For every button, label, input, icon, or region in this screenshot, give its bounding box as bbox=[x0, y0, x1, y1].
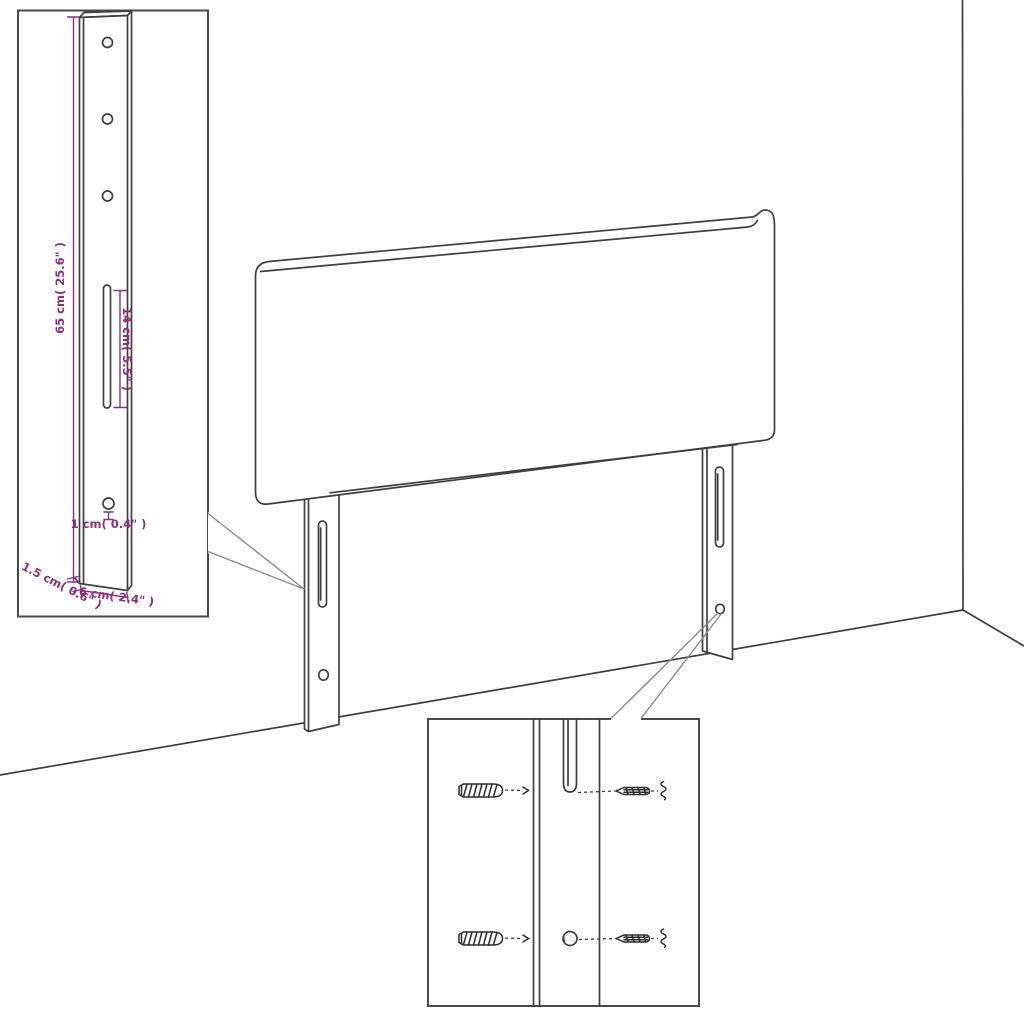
callout-notch-left bbox=[208, 512, 305, 589]
screw-detail-inset bbox=[428, 719, 699, 1006]
dim-height-label: 65 cm( 25.6" ) bbox=[53, 242, 67, 334]
wall-corner-line bbox=[963, 0, 964, 610]
dim-slot-label: 14 cm( 5.5" ) bbox=[120, 307, 134, 391]
strip-hole-accent bbox=[564, 937, 565, 942]
plug-dash-2 bbox=[505, 938, 520, 939]
dim-hole-label: 1 cm( 0.4" ) bbox=[71, 517, 147, 531]
diagram-canvas: 65 cm( 25.6" ) 14 cm( 5.5" ) 1 cm( 0.4" … bbox=[0, 0, 1024, 1024]
headboard-assembly-diagram: 65 cm( 25.6" ) 14 cm( 5.5" ) 1 cm( 0.4" … bbox=[0, 0, 1024, 1024]
left-leg-body bbox=[305, 478, 340, 732]
headboard-right-leg bbox=[703, 440, 733, 660]
floor-line-right bbox=[963, 610, 1024, 646]
callout-right-line-right bbox=[641, 614, 722, 719]
plug-dash-1 bbox=[505, 790, 520, 791]
headboard-outline bbox=[256, 210, 775, 504]
headboard-left-leg bbox=[305, 478, 340, 732]
headboard-panel bbox=[256, 210, 775, 504]
bracket-drawing bbox=[75, 11, 132, 591]
callout-right-line-left bbox=[611, 613, 719, 719]
